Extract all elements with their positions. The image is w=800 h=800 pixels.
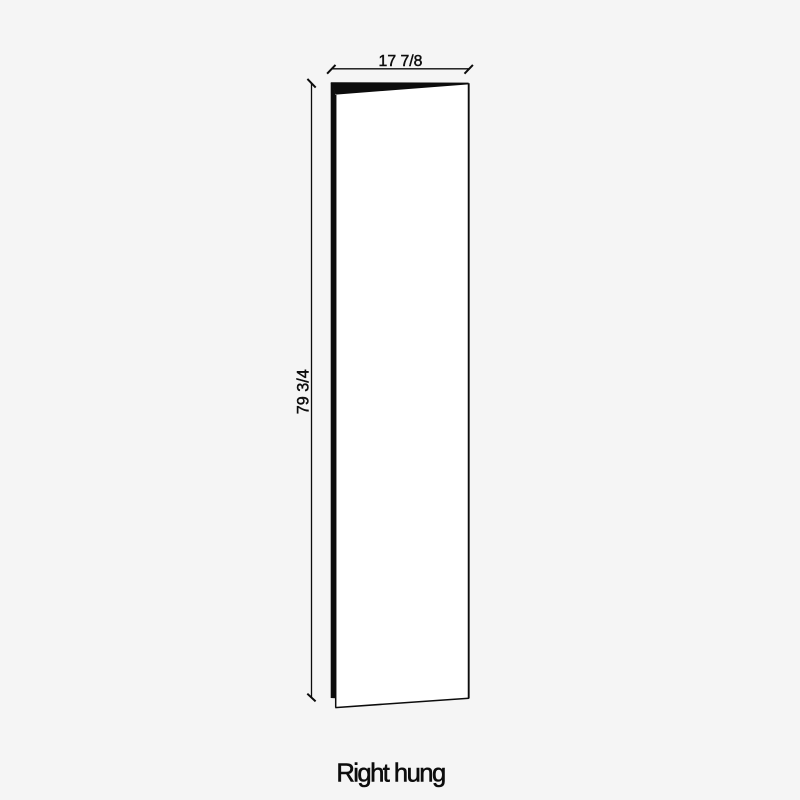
svg-text:79 3/4: 79 3/4: [294, 369, 312, 414]
svg-text:17 7/8: 17 7/8: [379, 53, 423, 70]
svg-text:Right hung: Right hung: [336, 759, 445, 787]
